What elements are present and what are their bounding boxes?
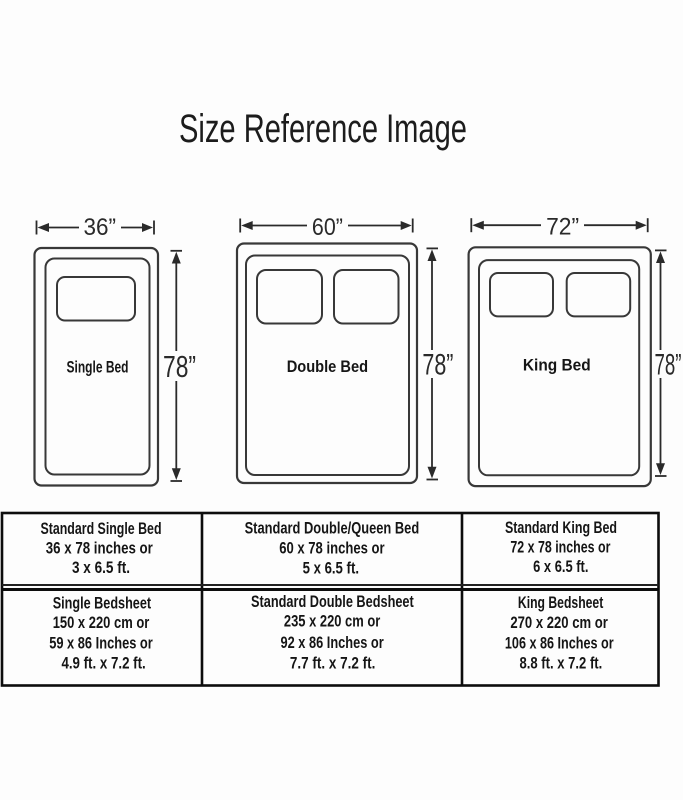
svg-text:36”: 36” — [83, 214, 116, 241]
svg-text:60”: 60” — [312, 214, 343, 241]
svg-text:78”: 78” — [655, 349, 682, 382]
svg-text:72”: 72” — [546, 214, 579, 241]
svg-text:92 x 86 Inches or: 92 x 86 Inches or — [281, 634, 385, 652]
svg-text:8.8 ft. x 7.2 ft.: 8.8 ft. x 7.2 ft. — [520, 655, 603, 673]
svg-text:King Bed: King Bed — [523, 356, 591, 375]
svg-text:Standard King Bed: Standard King Bed — [505, 519, 617, 537]
svg-text:72 x 78 inches or: 72 x 78 inches or — [510, 539, 611, 557]
svg-text:Standard Single Bed: Standard Single Bed — [41, 520, 162, 538]
svg-text:Size Reference Image: Size Reference Image — [179, 107, 467, 151]
svg-text:Double Bed: Double Bed — [287, 357, 368, 376]
svg-text:4.9 ft. x 7.2 ft.: 4.9 ft. x 7.2 ft. — [61, 655, 145, 673]
svg-text:5 x 6.5 ft.: 5 x 6.5 ft. — [303, 560, 359, 578]
svg-text:36 x 78 inches or: 36 x 78 inches or — [46, 540, 153, 558]
svg-text:270 x 220 cm or: 270 x 220 cm or — [510, 614, 608, 632]
svg-text:60 x 78 inches or: 60 x 78 inches or — [279, 540, 385, 558]
svg-text:78”: 78” — [163, 349, 196, 384]
svg-text:6 x 6.5 ft.: 6 x 6.5 ft. — [533, 558, 588, 576]
svg-text:King Bedsheet: King Bedsheet — [518, 594, 604, 612]
svg-text:7.7 ft. x 7.2 ft.: 7.7 ft. x 7.2 ft. — [290, 655, 376, 673]
svg-text:78”: 78” — [422, 349, 453, 382]
svg-text:Standard Double Bedsheet: Standard Double Bedsheet — [251, 593, 414, 611]
svg-text:235 x 220 cm or: 235 x 220 cm or — [284, 613, 381, 631]
svg-text:59 x 86 Inches or: 59 x 86 Inches or — [49, 635, 153, 653]
svg-text:Single Bedsheet: Single Bedsheet — [53, 595, 152, 613]
svg-text:Single Bed: Single Bed — [67, 358, 129, 377]
svg-text:150 x 220 cm or: 150 x 220 cm or — [53, 614, 150, 632]
svg-text:106 x 86 Inches or: 106 x 86 Inches or — [505, 635, 614, 653]
svg-text:3 x 6.5 ft.: 3 x 6.5 ft. — [72, 559, 130, 577]
svg-text:Standard Double/Queen Bed: Standard Double/Queen Bed — [245, 520, 420, 538]
